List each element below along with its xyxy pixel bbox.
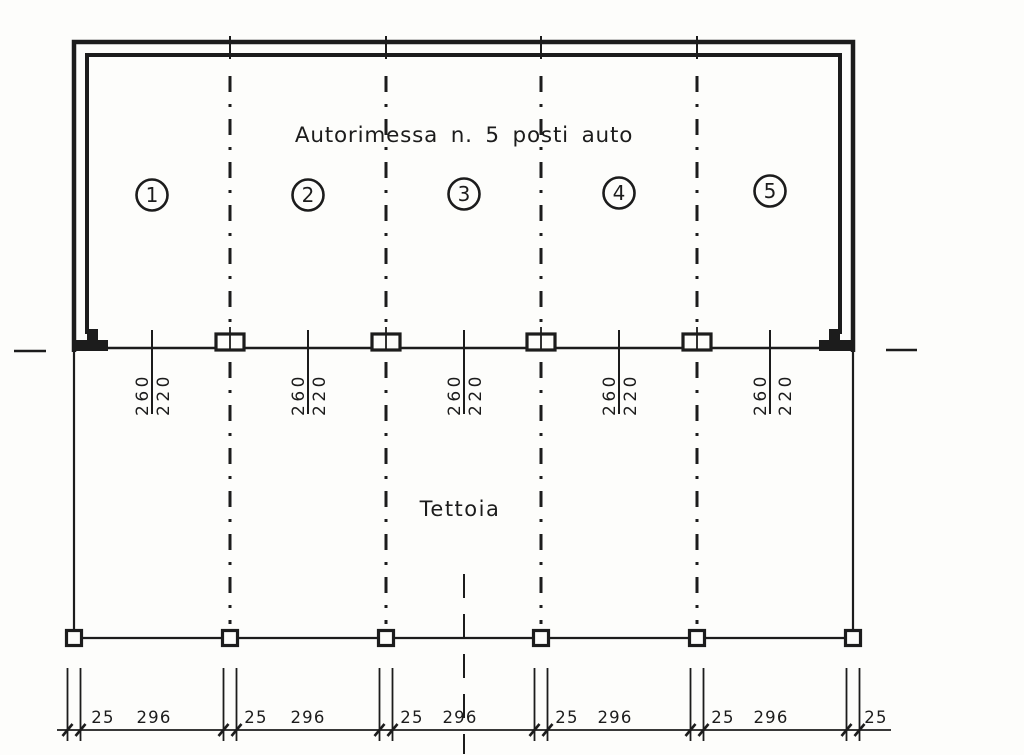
span-label-5: 296 — [753, 708, 788, 727]
wall-return-right-step — [829, 329, 840, 341]
post-width-label-2: 25 — [244, 708, 267, 727]
wall-return-right — [819, 340, 853, 351]
door-dim-left-label-1: 260 — [133, 373, 153, 416]
post-width-label-1: 25 — [91, 708, 114, 727]
bay-number-4: 4 — [613, 181, 626, 205]
closing-post-width-label: 25 — [864, 708, 887, 727]
post-width-label-5: 25 — [711, 708, 734, 727]
canopy-post-1 — [67, 631, 82, 646]
post-width-label-4: 25 — [555, 708, 578, 727]
span-label-2: 296 — [290, 708, 325, 727]
garage-title: Autorimessa n. 5 posti auto — [295, 123, 633, 148]
scanned-floor-plan-page: Autorimessa n. 5 posti auto 1 2 3 4 5 26… — [0, 0, 1024, 755]
canopy-post-5 — [690, 631, 705, 646]
span-label-1: 296 — [136, 708, 171, 727]
door-dim-right-label-5: 220 — [776, 373, 796, 416]
door-dimension-4: 260 220 — [600, 330, 641, 416]
door-dim-right-label-3: 220 — [466, 373, 486, 416]
door-dim-right-label-2: 220 — [310, 373, 330, 416]
bay-marker-4: 4 — [604, 178, 635, 209]
garage-floor-plan-drawing: Autorimessa n. 5 posti auto 1 2 3 4 5 26… — [0, 0, 1024, 755]
door-dimension-1: 260 220 — [133, 330, 174, 416]
bay-marker-2: 2 — [293, 180, 324, 211]
canopy-post-3 — [379, 631, 394, 646]
span-label-3: 296 — [442, 708, 477, 727]
door-dimension-2: 260 220 — [289, 330, 330, 416]
door-dim-left-label-2: 260 — [289, 373, 309, 416]
bay-number-5: 5 — [764, 179, 777, 203]
door-dimension-3: 260 220 — [445, 330, 486, 416]
span-label-4: 296 — [597, 708, 632, 727]
door-dim-right-label-1: 220 — [154, 373, 174, 416]
dimension-chain: 25 296 25 296 25 296 25 296 25 296 25 — [57, 668, 891, 741]
bay-marker-1: 1 — [137, 180, 168, 211]
door-dim-left-label-4: 260 — [600, 373, 620, 416]
dimension-labels: 25 296 25 296 25 296 25 296 25 296 25 — [91, 708, 887, 727]
wall-return-left-step — [87, 329, 98, 341]
canopy-post-2 — [223, 631, 238, 646]
bay-marker-5: 5 — [755, 176, 786, 207]
bay-number-1: 1 — [146, 183, 159, 207]
door-dimension-5: 260 220 — [751, 330, 796, 416]
wall-return-left — [74, 340, 108, 351]
bay-number-2: 2 — [302, 183, 315, 207]
post-width-label-3: 25 — [400, 708, 423, 727]
door-dim-left-label-5: 260 — [751, 373, 771, 416]
door-dim-right-label-4: 220 — [621, 373, 641, 416]
canopy-post-6 — [846, 631, 861, 646]
canopy-label: Tettoia — [419, 497, 501, 521]
canopy-post-4 — [534, 631, 549, 646]
bay-number-3: 3 — [458, 182, 471, 206]
bay-marker-3: 3 — [449, 179, 480, 210]
door-dim-left-label-3: 260 — [445, 373, 465, 416]
